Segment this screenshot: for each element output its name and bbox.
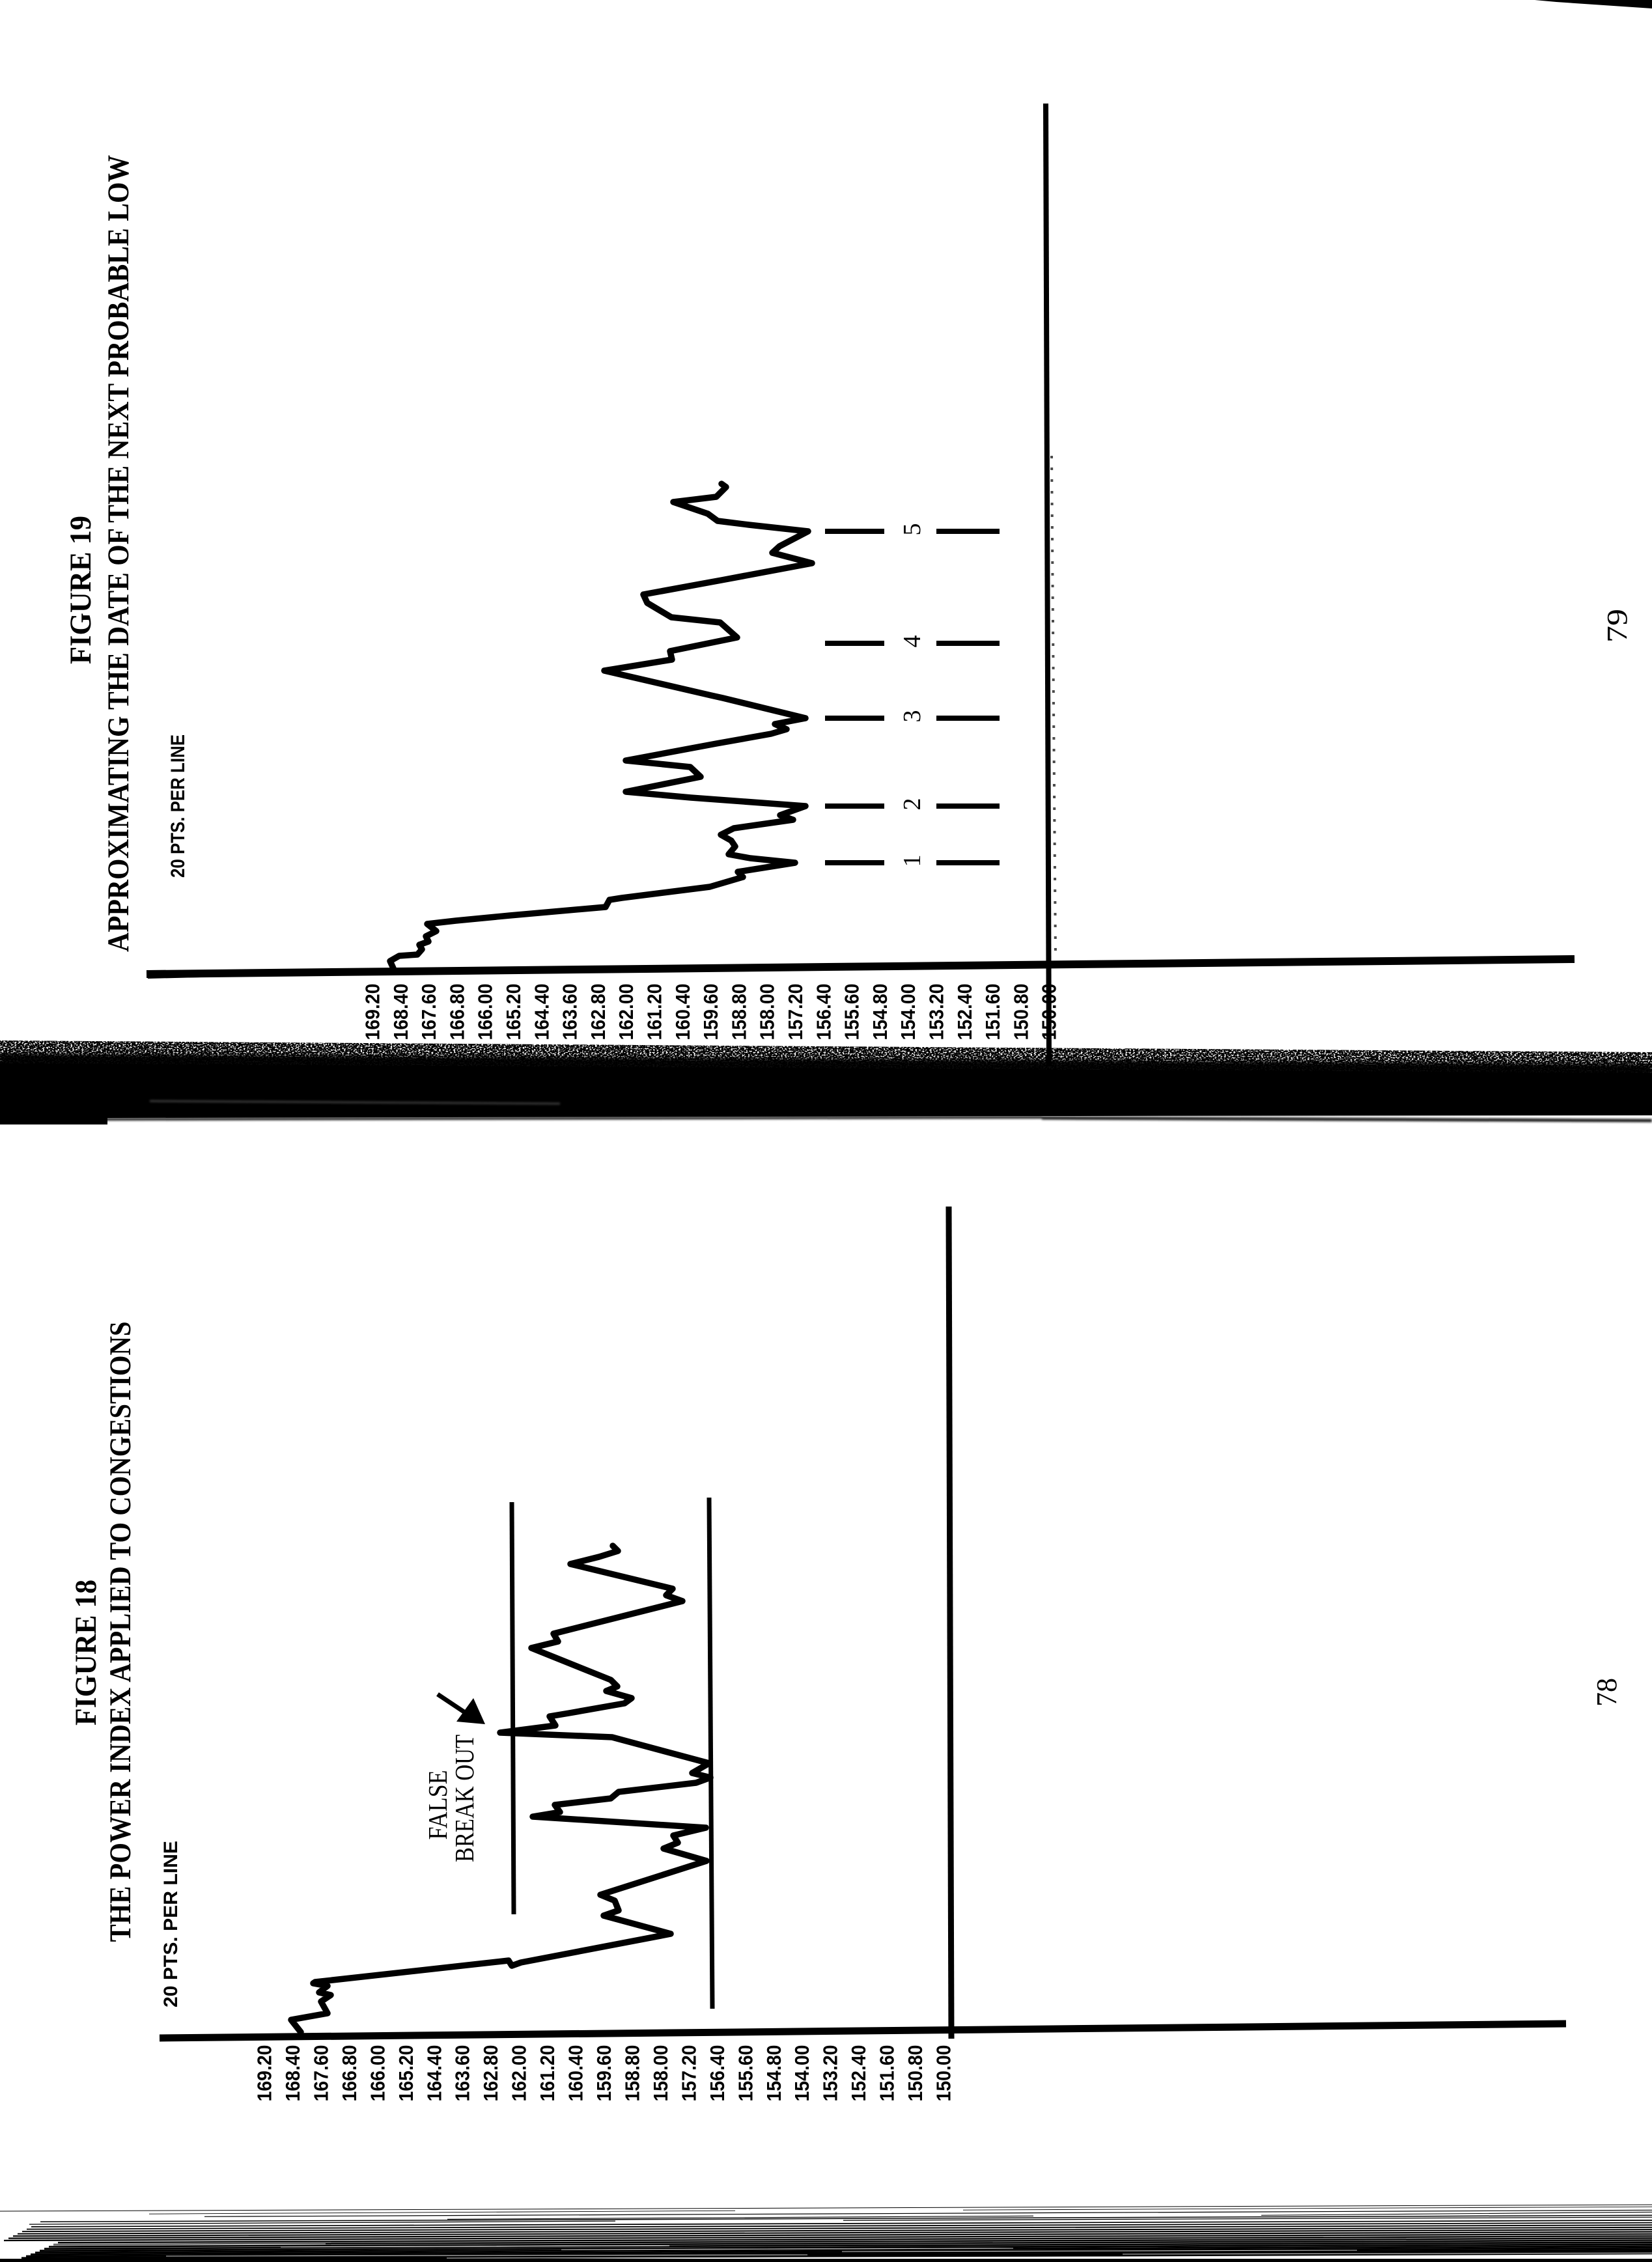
svg-text:162.00: 162.00 bbox=[615, 984, 637, 1040]
svg-text:166.80: 166.80 bbox=[445, 984, 468, 1040]
svg-text:166.00: 166.00 bbox=[366, 2045, 389, 2102]
svg-text:157.20: 157.20 bbox=[784, 984, 807, 1040]
svg-text:151.60: 151.60 bbox=[981, 984, 1004, 1040]
svg-text:161.20: 161.20 bbox=[643, 984, 666, 1040]
svg-text:155.60: 155.60 bbox=[841, 984, 863, 1040]
svg-text:BREAK OUT: BREAK OUT bbox=[449, 1735, 479, 1862]
svg-text:162.80: 162.80 bbox=[587, 984, 609, 1040]
svg-text:162.00: 162.00 bbox=[508, 2045, 531, 2102]
svg-text:164.40: 164.40 bbox=[530, 984, 553, 1040]
svg-text:150.00: 150.00 bbox=[1038, 984, 1061, 1040]
svg-text:150.00: 150.00 bbox=[932, 2045, 955, 2102]
svg-text:153.20: 153.20 bbox=[819, 2045, 842, 2102]
svg-text:158.00: 158.00 bbox=[756, 984, 779, 1040]
svg-text:153.20: 153.20 bbox=[925, 984, 948, 1040]
svg-text:2: 2 bbox=[899, 798, 926, 811]
svg-text:5: 5 bbox=[899, 524, 926, 536]
svg-text:167.60: 167.60 bbox=[309, 2045, 332, 2102]
svg-text:161.20: 161.20 bbox=[536, 2045, 559, 2102]
svg-text:79: 79 bbox=[1601, 609, 1633, 643]
svg-text:157.20: 157.20 bbox=[677, 2045, 700, 2102]
svg-text:158.00: 158.00 bbox=[649, 2045, 672, 2102]
svg-text:152.40: 152.40 bbox=[847, 2045, 870, 2102]
svg-text:4: 4 bbox=[899, 635, 926, 648]
svg-text:THE POWER INDEX APPLIED TO CON: THE POWER INDEX APPLIED TO CONGESTIONS bbox=[104, 1322, 137, 1942]
svg-text:166.00: 166.00 bbox=[474, 984, 497, 1040]
svg-text:165.20: 165.20 bbox=[395, 2045, 417, 2102]
svg-text:78: 78 bbox=[1591, 1678, 1623, 1707]
svg-text:152.40: 152.40 bbox=[953, 984, 976, 1040]
svg-text:158.80: 158.80 bbox=[727, 984, 750, 1040]
svg-text:164.40: 164.40 bbox=[423, 2045, 445, 2102]
svg-text:160.40: 160.40 bbox=[565, 2045, 587, 2102]
svg-text:FIGURE 18: FIGURE 18 bbox=[69, 1580, 103, 1725]
svg-text:154.80: 154.80 bbox=[763, 2045, 785, 2102]
svg-text:154.80: 154.80 bbox=[869, 984, 891, 1040]
svg-text:163.60: 163.60 bbox=[451, 2045, 474, 2102]
svg-text:166.80: 166.80 bbox=[338, 2045, 361, 2102]
svg-text:162.80: 162.80 bbox=[479, 2045, 502, 2102]
svg-text:169.20: 169.20 bbox=[253, 2045, 276, 2102]
svg-text:150.80: 150.80 bbox=[1009, 984, 1032, 1040]
svg-text:154.00: 154.00 bbox=[897, 984, 919, 1040]
svg-text:160.40: 160.40 bbox=[671, 984, 694, 1040]
svg-text:FALSE: FALSE bbox=[423, 1770, 453, 1840]
svg-text:FIGURE 19: FIGURE 19 bbox=[64, 516, 98, 664]
svg-text:155.60: 155.60 bbox=[734, 2045, 757, 2102]
svg-text:158.80: 158.80 bbox=[621, 2045, 644, 2102]
svg-text:3: 3 bbox=[899, 710, 926, 723]
svg-text:169.20: 169.20 bbox=[361, 984, 384, 1040]
svg-text:20 PTS. PER LINE: 20 PTS. PER LINE bbox=[167, 734, 189, 878]
svg-text:APPROXIMATING THE DATE OF THE: APPROXIMATING THE DATE OF THE NEXT PROBA… bbox=[102, 155, 135, 952]
svg-text:150.80: 150.80 bbox=[904, 2045, 927, 2102]
svg-text:165.20: 165.20 bbox=[502, 984, 525, 1040]
svg-text:168.40: 168.40 bbox=[389, 984, 412, 1040]
svg-text:159.60: 159.60 bbox=[699, 984, 722, 1040]
svg-text:168.40: 168.40 bbox=[281, 2045, 304, 2102]
svg-text:159.60: 159.60 bbox=[593, 2045, 615, 2102]
svg-text:154.00: 154.00 bbox=[791, 2045, 813, 2102]
svg-text:1: 1 bbox=[899, 855, 926, 867]
svg-text:156.40: 156.40 bbox=[812, 984, 835, 1040]
svg-text:151.60: 151.60 bbox=[876, 2045, 899, 2102]
svg-text:20 PTS. PER LINE: 20 PTS. PER LINE bbox=[160, 1841, 182, 2007]
svg-text:163.60: 163.60 bbox=[559, 984, 581, 1040]
svg-text:156.40: 156.40 bbox=[706, 2045, 729, 2102]
svg-text:167.60: 167.60 bbox=[417, 984, 440, 1040]
